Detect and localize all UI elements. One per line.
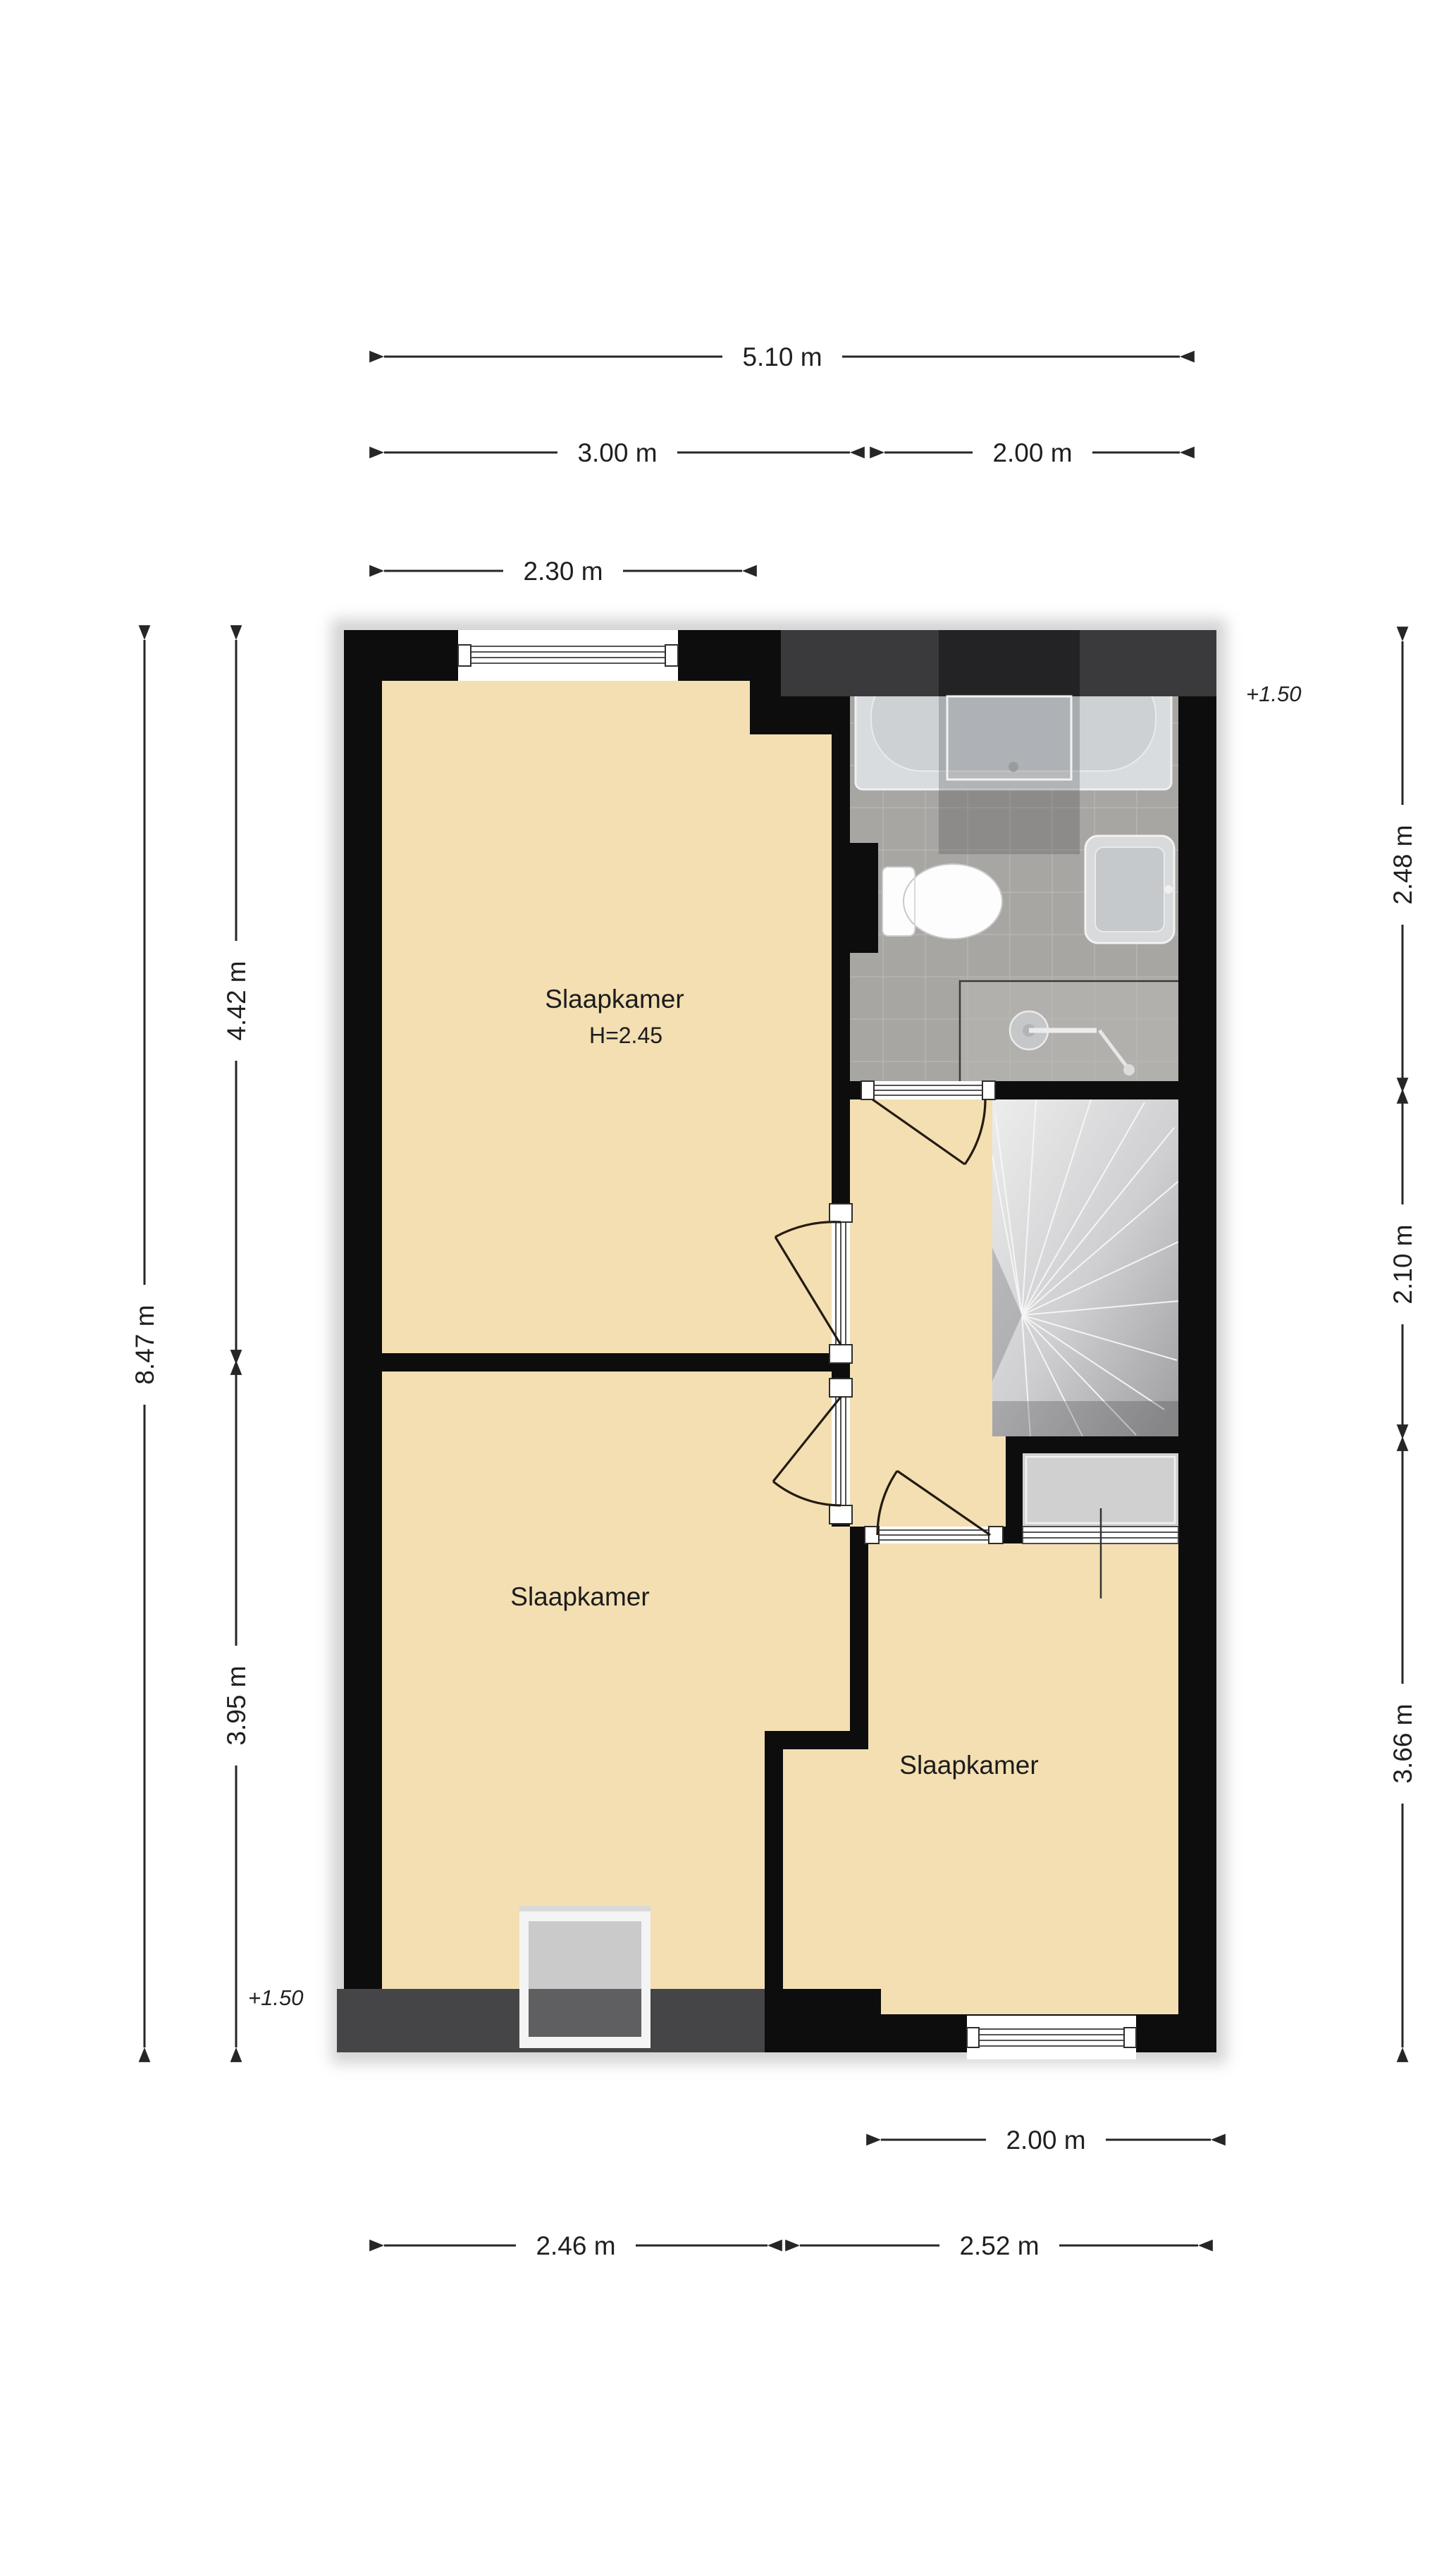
wall-closet-top — [1006, 1436, 1178, 1453]
washbasin-icon — [1085, 836, 1174, 943]
dim-top-total: 5.10 m — [742, 343, 822, 371]
dim-right-bathroom: 2.48 m — [1388, 825, 1417, 904]
dim-left-total: 8.47 m — [130, 1305, 159, 1384]
wall-toilet-partition — [850, 843, 878, 953]
wall-bedroom3-left-upper — [850, 1543, 868, 1738]
toilet-icon — [882, 864, 1002, 939]
dim-bottom-window: 2.00 m — [1006, 2126, 1085, 2155]
dormer-window-frame — [947, 696, 1071, 779]
window-bottom — [967, 2016, 1136, 2059]
wall-bedroom3-left-lower — [765, 1749, 783, 2014]
wall-jog — [765, 1731, 868, 1749]
dormer-window-icon — [519, 1906, 650, 2048]
floorplan-canvas: Slaapkamer H=2.45 Slaapkamer Slaapkamer … — [0, 0, 1449, 2576]
room-label-bedroom-3: Slaapkamer — [899, 1751, 1038, 1780]
floor-plan: Slaapkamer H=2.45 Slaapkamer Slaapkamer … — [248, 630, 1301, 2059]
dim-top-left-section: 3.00 m — [577, 438, 657, 467]
dim-bottom-left-room: 2.46 m — [536, 2231, 615, 2260]
dim-left-bedroom1: 4.42 m — [222, 961, 251, 1040]
dim-top-window: 2.30 m — [523, 557, 603, 586]
dim-bottom-right-room: 2.52 m — [959, 2231, 1039, 2260]
floorplan-page: Slaapkamer H=2.45 Slaapkamer Slaapkamer … — [0, 0, 1449, 2576]
wall-between-left-bedrooms — [382, 1353, 832, 1372]
dim-left-bedroom2: 3.95 m — [222, 1665, 251, 1745]
wall-left — [344, 630, 382, 1989]
dormer-top-icon — [939, 630, 1080, 696]
window-top — [458, 630, 678, 681]
level-marker-bottom-left: +1.50 — [248, 1985, 303, 2010]
spiral-staircase-icon — [992, 1099, 1178, 1436]
dim-right-stairs: 2.10 m — [1388, 1224, 1417, 1304]
floor-hallway — [850, 1099, 1006, 1527]
dim-top-right-section: 2.00 m — [992, 438, 1072, 467]
level-marker-top-right: +1.50 — [1246, 682, 1301, 706]
ceiling-height-label: H=2.45 — [589, 1023, 662, 1048]
room-label-bedroom-1: Slaapkamer — [545, 985, 684, 1013]
room-label-bedroom-2: Slaapkamer — [510, 1582, 649, 1611]
wall-closet-left — [1006, 1453, 1023, 1543]
wall-right — [1178, 630, 1216, 2052]
dim-right-bedroom3: 3.66 m — [1388, 1703, 1417, 1783]
